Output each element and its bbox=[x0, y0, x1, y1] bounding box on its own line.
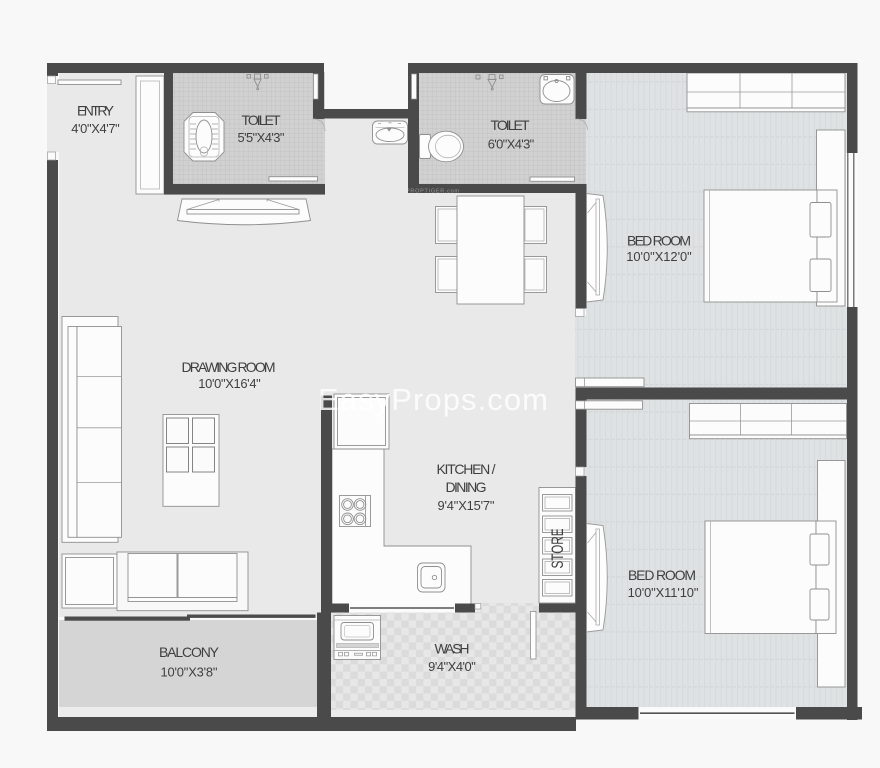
svg-text:PROPTIGER.com: PROPTIGER.com bbox=[406, 189, 459, 195]
svg-text:10'0"X11'10": 10'0"X11'10" bbox=[628, 585, 699, 600]
svg-text:10'0"X12'0": 10'0"X12'0" bbox=[626, 249, 692, 264]
svg-text:6'0"X4'3": 6'0"X4'3" bbox=[488, 136, 535, 151]
svg-text:BED ROOM: BED ROOM bbox=[627, 233, 691, 249]
svg-text:DINING: DINING bbox=[446, 479, 487, 495]
svg-text:9'4"X4'0": 9'4"X4'0" bbox=[428, 659, 476, 674]
svg-text:STORE: STORE bbox=[549, 529, 567, 569]
svg-text:9'4"X15'7": 9'4"X15'7" bbox=[438, 498, 495, 513]
svg-text:ENTRY: ENTRY bbox=[77, 103, 115, 119]
svg-text:WASH: WASH bbox=[435, 641, 470, 657]
svg-text:10'0"X16'4": 10'0"X16'4" bbox=[198, 376, 261, 391]
svg-text:4'0"X4'7": 4'0"X4'7" bbox=[71, 121, 120, 136]
svg-text:BED ROOM: BED ROOM bbox=[628, 567, 696, 583]
svg-text:KITCHEN /: KITCHEN / bbox=[437, 461, 496, 477]
svg-text:5'5"X4'3": 5'5"X4'3" bbox=[238, 130, 285, 145]
svg-text:TOILET: TOILET bbox=[491, 117, 530, 133]
svg-text:TOILET: TOILET bbox=[242, 112, 281, 128]
svg-text:BALCONY: BALCONY bbox=[159, 644, 220, 660]
svg-text:EasyProps.com: EasyProps.com bbox=[318, 382, 548, 417]
svg-text:10'0"X3'8": 10'0"X3'8" bbox=[161, 664, 218, 679]
svg-text:DRAWING ROOM: DRAWING ROOM bbox=[182, 359, 276, 375]
